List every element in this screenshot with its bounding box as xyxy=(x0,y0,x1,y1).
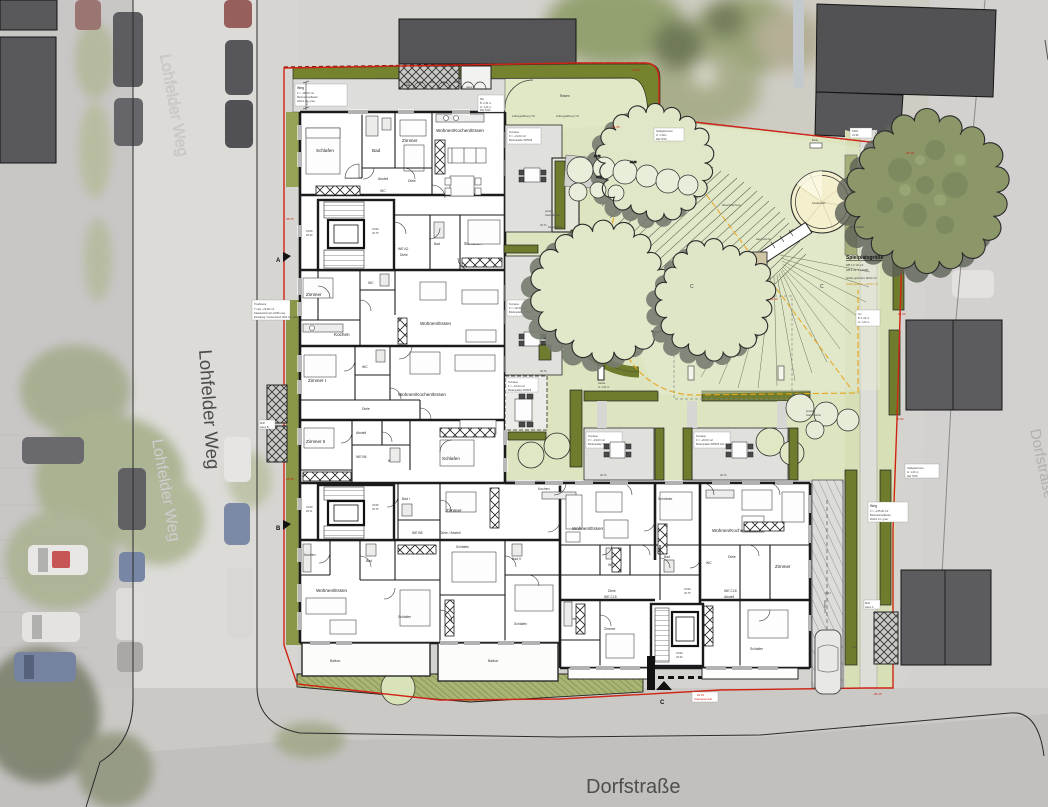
svg-text:Spielplatzgröße: Spielplatzgröße xyxy=(846,255,883,261)
svg-text:Wohnen/Essen: Wohnen/Essen xyxy=(420,321,452,326)
svg-text:F = ~20,00 m2: F = ~20,00 m2 xyxy=(696,438,713,442)
svg-text:Wohnen/Essen: Wohnen/Essen xyxy=(572,526,604,531)
svg-text:Zimmer: Zimmer xyxy=(604,627,616,631)
svg-text:20x10 cm, grau: 20x10 cm, grau xyxy=(870,517,888,521)
svg-text:Haus C: Haus C xyxy=(865,605,874,609)
svg-text:Bad I: Bad I xyxy=(402,497,410,501)
svg-text:28.45: 28.45 xyxy=(874,692,882,696)
svg-text:OKFF: OKFF xyxy=(684,587,691,591)
svg-text:WB 6-19: 3 m2/WB: WB 6-19: 3 m2/WB xyxy=(846,268,868,272)
svg-text:30.60: 30.60 xyxy=(632,68,640,72)
svg-text:B: 1,00 m: B: 1,00 m xyxy=(858,316,869,320)
svg-text:Weg: Weg xyxy=(297,86,304,90)
svg-text:C: C xyxy=(690,284,694,290)
svg-text:Sandkasten: Sandkasten xyxy=(812,201,826,205)
svg-text:OKFF: OKFF xyxy=(676,651,683,655)
svg-text:Zimmer I: Zimmer I xyxy=(308,378,326,383)
svg-text:Abstell: Abstell xyxy=(356,431,366,435)
svg-text:Diele: Diele xyxy=(608,589,616,593)
svg-text:29.32: 29.32 xyxy=(697,693,704,697)
svg-text:Terrasse: Terrasse xyxy=(508,380,519,384)
svg-text:private: private xyxy=(545,209,553,213)
svg-text:Hecke: Hecke xyxy=(598,381,606,385)
svg-text:30.74: 30.74 xyxy=(600,473,607,477)
svg-text:Wohnen/Kochen/Essen: Wohnen/Kochen/Essen xyxy=(398,392,446,397)
svg-text:C: C xyxy=(820,284,824,290)
svg-text:Hangrutsche: Hangrutsche xyxy=(756,237,771,241)
svg-text:Abstell: Abstell xyxy=(378,177,388,181)
svg-text:Wohnen/Essen: Wohnen/Essen xyxy=(316,588,348,593)
svg-text:DKM: DKM xyxy=(852,129,858,133)
svg-text:Rampe TG: Rampe TG xyxy=(823,600,827,613)
svg-text:1,50: 1,50 xyxy=(860,724,866,728)
svg-text:WE C16: WE C16 xyxy=(724,589,737,593)
svg-text:Schlafen: Schlafen xyxy=(456,545,469,549)
svg-text:30.75: 30.75 xyxy=(372,507,379,511)
svg-text:F = ~165,00 m2: F = ~165,00 m2 xyxy=(870,509,889,513)
svg-text:3517: 3517 xyxy=(825,591,831,595)
svg-text:30.75: 30.75 xyxy=(684,591,691,595)
svg-text:WB 1-5: 20 m2: WB 1-5: 20 m2 xyxy=(846,263,864,267)
svg-text:30.75: 30.75 xyxy=(372,231,379,235)
svg-text:WE A2: WE A2 xyxy=(398,247,408,251)
svg-text:30.32: 30.32 xyxy=(896,417,904,421)
svg-text:Kochen: Kochen xyxy=(538,487,550,491)
svg-text:WE C15: WE C15 xyxy=(604,595,617,599)
svg-text:28,38: 28,38 xyxy=(594,154,601,158)
svg-text:Zimmer: Zimmer xyxy=(306,292,322,297)
svg-text:Gartenfläche: Gartenfläche xyxy=(545,213,560,217)
svg-text:28.30: 28.30 xyxy=(306,233,313,237)
svg-text:Bad: Bad xyxy=(434,242,440,246)
svg-text:H: 1,40 m: H: 1,40 m xyxy=(598,385,609,389)
svg-text:Schlafen: Schlafen xyxy=(398,615,411,619)
svg-text:Ral 7016: Ral 7016 xyxy=(907,474,918,478)
svg-text:Wohnen/Kochen/Essen: Wohnen/Kochen/Essen xyxy=(436,128,484,133)
svg-text:Terrasse: Terrasse xyxy=(509,302,520,306)
svg-text:A: A xyxy=(276,258,281,264)
svg-text:WC: WC xyxy=(362,365,368,369)
svg-text:OKFF: OKFF xyxy=(306,505,313,509)
svg-text:Bad: Bad xyxy=(664,555,670,559)
svg-text:F = ~31,00 m2: F = ~31,00 m2 xyxy=(509,134,526,138)
svg-text:Stabgitterzaun: Stabgitterzaun xyxy=(656,129,673,133)
svg-text:Balkon: Balkon xyxy=(330,659,340,663)
svg-text:Diele: Diele xyxy=(728,555,736,559)
svg-text:Ral 7016: Ral 7016 xyxy=(480,108,491,112)
svg-text:Abstell: Abstell xyxy=(724,595,734,599)
svg-text:F = ~19,00 m2: F = ~19,00 m2 xyxy=(588,438,605,442)
svg-text:Müll: Müll xyxy=(404,83,410,87)
svg-text:Lüftungsöffnung TG: Lüftungsöffnung TG xyxy=(512,114,535,118)
svg-text:H: 1,20 m: H: 1,20 m xyxy=(858,320,869,324)
svg-text:OKFF: OKFF xyxy=(372,227,379,231)
svg-text:28.75: 28.75 xyxy=(286,217,294,221)
svg-text:Bad II: Bad II xyxy=(512,557,521,561)
svg-text:Müll: Müll xyxy=(865,601,870,605)
svg-text:WC: WC xyxy=(368,281,374,285)
svg-text:OKFF: OKFF xyxy=(306,229,313,233)
svg-text:WE B8: WE B8 xyxy=(412,531,423,535)
svg-text:H: 1,00 m: H: 1,00 m xyxy=(907,470,918,474)
svg-text:Tor: Tor xyxy=(858,312,862,316)
svg-text:28.11: 28.11 xyxy=(306,509,313,513)
svg-text:Terrasse: Terrasse xyxy=(588,434,599,438)
svg-text:private: private xyxy=(806,409,814,413)
svg-text:29.48: 29.48 xyxy=(906,151,914,155)
svg-text:Kochen: Kochen xyxy=(304,553,316,557)
svg-text:H: 1,20m: H: 1,20m xyxy=(656,133,667,137)
svg-text:Bad: Bad xyxy=(372,148,381,153)
svg-text:24.35: 24.35 xyxy=(612,125,620,129)
svg-text:Schlafen: Schlafen xyxy=(442,456,460,461)
svg-text:Entwässg. Kantenstaub 9/20 cm,: Entwässg. Kantenstaub 9/20 cm, grau xyxy=(254,315,298,319)
svg-text:Zimmer: Zimmer xyxy=(402,138,418,143)
svg-text:Terrasse: Terrasse xyxy=(696,434,707,438)
svg-text:30.74: 30.74 xyxy=(720,473,727,477)
svg-text:Tor: Tor xyxy=(480,97,484,101)
svg-text:Lüftungsöffnung TG: Lüftungsöffnung TG xyxy=(556,114,579,118)
svg-text:Zimmer II: Zimmer II xyxy=(306,439,325,444)
svg-text:Größe geplant: ~129,37 m2: Größe geplant: ~129,37 m2 xyxy=(846,282,878,286)
svg-text:Betonsteinpflaster: Betonsteinpflaster xyxy=(870,513,891,517)
svg-text:30.74: 30.74 xyxy=(540,369,547,373)
svg-text:Kochen: Kochen xyxy=(334,332,350,337)
svg-text:29.00: 29.00 xyxy=(898,312,906,316)
svg-text:Schlafen: Schlafen xyxy=(316,148,334,153)
svg-text:Katasterformeln 22/56 max: Katasterformeln 22/56 max xyxy=(254,311,286,315)
svg-text:29,40: 29,40 xyxy=(770,297,778,301)
svg-text:Stabgitterzaun: Stabgitterzaun xyxy=(907,466,924,470)
svg-text:Bodenplatte 50/50/5: Bodenplatte 50/50/5 xyxy=(508,388,532,392)
svg-text:Gartenfläche: Gartenfläche xyxy=(806,413,821,417)
svg-text:Betonsteinpflaster: Betonsteinpflaster xyxy=(297,95,318,99)
svg-text:Diele / Abstell: Diele / Abstell xyxy=(440,531,461,535)
svg-text:F = ~16,00 m2: F = ~16,00 m2 xyxy=(508,384,525,388)
svg-text:Größe gefordert: 98,03 m2: Größe gefordert: 98,03 m2 xyxy=(846,276,877,280)
svg-text:Schränke: Schränke xyxy=(658,497,672,501)
svg-text:Diele: Diele xyxy=(408,179,416,183)
svg-text:Balkon: Balkon xyxy=(488,659,498,663)
svg-text:Rasenfläche: Rasenfläche xyxy=(850,225,865,229)
svg-text:30,80: 30,80 xyxy=(630,160,637,164)
svg-text:28.95: 28.95 xyxy=(286,477,294,481)
svg-text:Bank: Bank xyxy=(812,138,819,142)
svg-text:Schlafen: Schlafen xyxy=(750,647,763,651)
svg-text:Weg: Weg xyxy=(870,504,877,508)
svg-text:Bodenplatte 50/50/5: Bodenplatte 50/50/5 xyxy=(509,138,533,142)
svg-text:Müll: Müll xyxy=(260,421,265,425)
svg-text:1,20: 1,20 xyxy=(875,131,881,135)
svg-text:29.30: 29.30 xyxy=(676,655,683,659)
svg-text:C: C xyxy=(660,700,665,706)
svg-text:Diele: Diele xyxy=(400,253,408,257)
svg-text:Zimmer: Zimmer xyxy=(775,564,791,569)
svg-text:Rasen: Rasen xyxy=(560,94,570,98)
svg-text:Zimmer: Zimmer xyxy=(446,508,462,513)
svg-text:31.96: 31.96 xyxy=(852,133,859,137)
svg-text:Terrasse: Terrasse xyxy=(509,130,520,134)
svg-text:T max ~29,96 m2: T max ~29,96 m2 xyxy=(254,307,275,311)
svg-text:B: B xyxy=(276,526,281,532)
svg-text:30.74: 30.74 xyxy=(540,223,547,227)
svg-text:WE B6: WE B6 xyxy=(356,455,367,459)
svg-text:Diele: Diele xyxy=(362,407,370,411)
svg-text:Rasenfläche: Rasenfläche xyxy=(548,225,563,229)
svg-text:Rasenböschung: Rasenböschung xyxy=(722,203,741,207)
svg-text:Haus B: Haus B xyxy=(260,425,269,429)
svg-text:Schlafen: Schlafen xyxy=(514,622,527,626)
svg-text:Haus B: Haus B xyxy=(466,85,475,89)
svg-text:OKFF: OKFF xyxy=(372,503,379,507)
svg-text:Traufkante: Traufkante xyxy=(254,302,267,306)
svg-text:Unterquerpunkt: Unterquerpunkt xyxy=(694,697,712,701)
svg-text:B: 2,40 m: B: 2,40 m xyxy=(480,101,491,105)
svg-text:WC: WC xyxy=(380,189,386,193)
svg-text:Ral 7016: Ral 7016 xyxy=(656,137,667,141)
svg-text:Haus A: Haus A xyxy=(404,87,413,91)
svg-text:2,15: 2,15 xyxy=(305,100,309,106)
svg-text:1,68: 1,68 xyxy=(852,645,858,649)
svg-text:WC: WC xyxy=(706,561,712,565)
